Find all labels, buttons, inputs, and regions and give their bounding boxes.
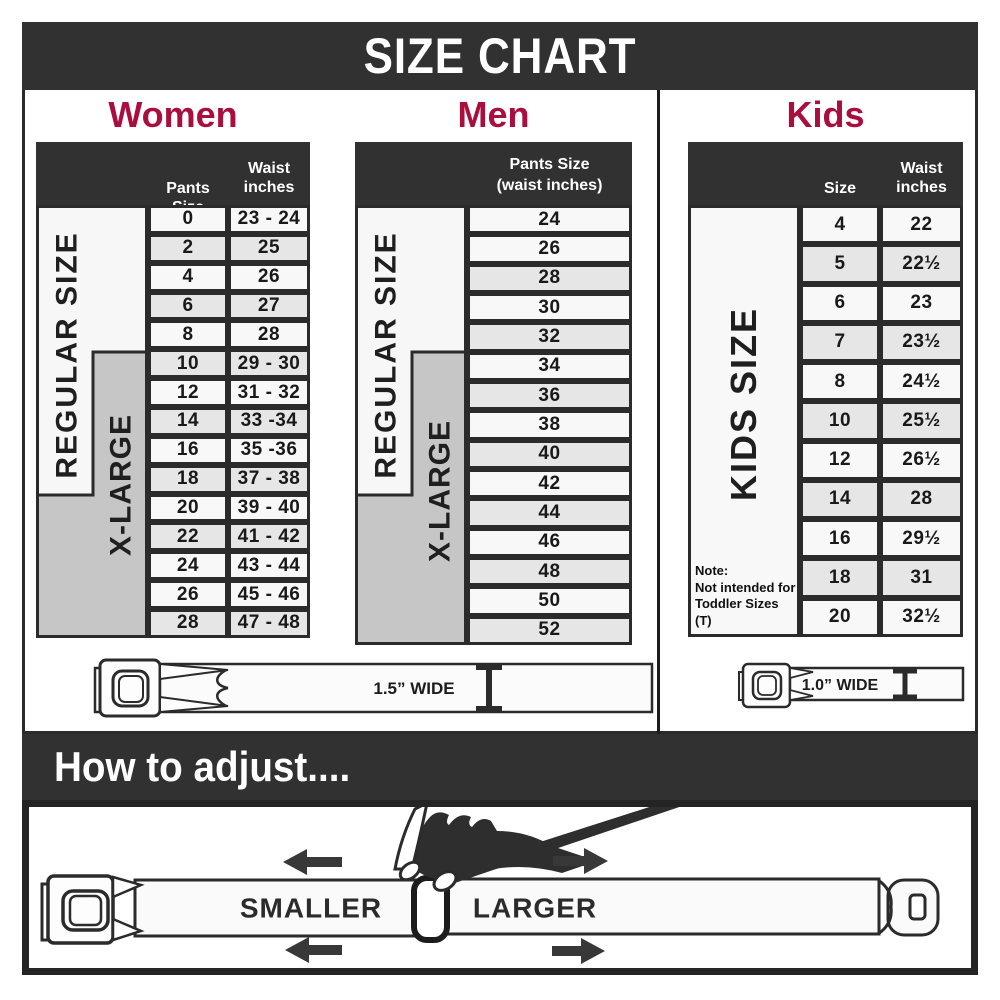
table-cell: 6 [800,284,880,323]
kids-note: Note: Not intended for Toddler Sizes (T) [695,563,797,629]
table-cell: 23 [880,284,963,323]
kids-table-header: Size Waist inches [688,142,963,205]
table-row: 422 [800,205,963,244]
table-cell: 32 [467,322,632,351]
men-col-pants-size: Pants Size (waist inches) [467,154,632,196]
size-chart-page: SIZE CHART Women Men Kids Pants Size Wai… [0,0,1000,1000]
table-cell: 28 [880,480,963,519]
table-row: 28 [467,264,632,293]
table-cell: 40 [467,440,632,469]
table-row: 623 [800,284,963,323]
kids-size-label: KIDS SIZE [723,307,765,501]
how-to-adjust-title: How to adjust.... [54,743,350,791]
adjust-illustration: SMALLER LARGER [29,807,971,968]
table-cell: 4 [148,263,228,292]
table-cell: 5 [800,244,880,283]
table-cell: 23 - 24 [228,205,310,234]
table-cell: 46 [467,528,632,557]
table-row: 1837 - 38 [148,465,310,494]
table-cell: 48 [467,557,632,586]
how-to-adjust-band: How to adjust.... [22,734,978,800]
table-cell: 26 [228,263,310,292]
table-cell: 36 [467,381,632,410]
table-cell: 39 - 40 [228,494,310,523]
table-cell: 6 [148,292,228,321]
table-cell: 20 [148,494,228,523]
table-cell: 45 - 46 [228,580,310,609]
larger-label: LARGER [473,893,597,924]
kids-col-waist: Waist inches [880,159,963,197]
table-cell: 27 [228,292,310,321]
table-cell: 4 [800,205,880,244]
men-title: Men [355,94,632,136]
table-cell: 28 [467,264,632,293]
table-row: 32 [467,322,632,351]
table-row: 36 [467,381,632,410]
table-cell: 42 [467,469,632,498]
men-xlarge-label: X-LARGE [424,420,457,562]
table-row: 1433 -34 [148,407,310,436]
table-row: 42 [467,469,632,498]
table-cell: 8 [800,362,880,401]
table-cell: 22 [880,205,963,244]
table-row: 44 [467,498,632,527]
table-cell: 25½ [880,401,963,440]
table-row: 2039 - 40 [148,494,310,523]
hand-icon [409,812,597,881]
women-size-category-column: REGULAR SIZE X-LARGE [36,205,148,638]
table-cell: 22 [148,522,228,551]
table-cell: 31 [880,558,963,597]
table-cell: 24 [148,551,228,580]
table-cell: 43 - 44 [228,551,310,580]
men-size-category-column: REGULAR SIZE X-LARGE [355,205,467,645]
table-cell: 50 [467,586,632,615]
table-row: 50 [467,586,632,615]
table-cell: 28 [228,320,310,349]
table-row: 1231 - 32 [148,378,310,407]
table-cell: 18 [800,558,880,597]
table-row: 426 [148,263,310,292]
table-row: 2241 - 42 [148,522,310,551]
table-cell: 8 [148,320,228,349]
smaller-label: SMALLER [240,893,382,924]
table-cell: 16 [148,436,228,465]
belt-tip-slot [910,895,925,919]
size-chart-banner: SIZE CHART [22,22,978,90]
table-cell: 0 [148,205,228,234]
table-cell: 25 [228,234,310,263]
table-cell: 41 - 42 [228,522,310,551]
table-cell: 26 [148,580,228,609]
table-row: 2032½ [800,598,963,637]
table-row: 52 [467,616,632,645]
women-table-header: Pants Size Waist inches [36,142,310,205]
table-row: 26 [467,234,632,263]
table-cell: 12 [148,378,228,407]
men-regular-size-label: REGULAR SIZE [370,231,403,478]
table-cell: 7 [800,323,880,362]
seatbelt-buckle-icon [100,660,160,716]
arrow-left-icon [283,849,342,875]
table-row: 1629½ [800,519,963,558]
table-row: 023 - 24 [148,205,310,234]
table-row: 2443 - 44 [148,551,310,580]
table-row: 627 [148,292,310,321]
table-row: 34 [467,352,632,381]
table-cell: 24½ [880,362,963,401]
table-cell: 14 [800,480,880,519]
table-cell: 37 - 38 [228,465,310,494]
table-row: 24 [467,205,632,234]
kids-table-rows: 422522½623723½824½1025½1226½14281629½183… [800,205,963,637]
table-row: 828 [148,320,310,349]
table-cell: 29 - 30 [228,349,310,378]
women-table-rows: 023 - 242254266278281029 - 301231 - 3214… [148,205,310,638]
table-row: 824½ [800,362,963,401]
table-cell: 33 -34 [228,407,310,436]
table-row: 2847 - 48 [148,609,310,638]
table-cell: 22½ [880,244,963,283]
page-title: SIZE CHART [364,27,637,85]
women-title: Women [36,94,310,136]
table-cell: 38 [467,410,632,439]
table-cell: 44 [467,498,632,527]
table-row: 1025½ [800,401,963,440]
table-cell: 2 [148,234,228,263]
kids-belt-width-label: 1.0” WIDE [780,677,900,695]
table-row: 1226½ [800,441,963,480]
table-cell: 10 [800,401,880,440]
kids-size-category-column: KIDS SIZE Note: Not intended for Toddler… [688,205,800,637]
table-row: 46 [467,528,632,557]
table-cell: 29½ [880,519,963,558]
table-cell: 47 - 48 [228,609,310,638]
women-xlarge-label: X-LARGE [105,414,138,556]
table-row: 1831 [800,558,963,597]
table-cell: 26½ [880,441,963,480]
kids-col-size: Size [800,179,880,198]
arrow-left-icon [285,937,342,963]
table-cell: 23½ [880,323,963,362]
men-table-header: Pants Size (waist inches) [355,142,632,205]
table-cell: 26 [467,234,632,263]
table-cell: 14 [148,407,228,436]
seatbelt-buckle-icon [48,876,113,943]
table-cell: 20 [800,598,880,637]
table-cell: 35 -36 [228,436,310,465]
table-row: 723½ [800,323,963,362]
women-regular-size-label: REGULAR SIZE [51,231,84,478]
table-row: 2645 - 46 [148,580,310,609]
women-col-waist: Waist inches [228,159,310,197]
table-row: 522½ [800,244,963,283]
adult-belt-width-label: 1.5” WIDE [334,679,494,699]
table-row: 48 [467,557,632,586]
table-cell: 28 [148,609,228,638]
table-row: 225 [148,234,310,263]
table-row: 30 [467,293,632,322]
table-row: 1635 -36 [148,436,310,465]
table-row: 38 [467,410,632,439]
table-row: 1428 [800,480,963,519]
men-table-rows: 242628303234363840424446485052 [467,205,632,645]
table-cell: 52 [467,616,632,645]
table-cell: 16 [800,519,880,558]
table-cell: 30 [467,293,632,322]
table-cell: 12 [800,441,880,480]
table-cell: 31 - 32 [228,378,310,407]
table-cell: 24 [467,205,632,234]
table-cell: 10 [148,349,228,378]
kids-title: Kids [688,94,963,136]
kids-section-divider [657,90,660,734]
table-cell: 34 [467,352,632,381]
table-row: 1029 - 30 [148,349,310,378]
table-cell: 32½ [880,598,963,637]
table-cell: 18 [148,465,228,494]
arrow-right-icon [552,938,605,964]
table-row: 40 [467,440,632,469]
